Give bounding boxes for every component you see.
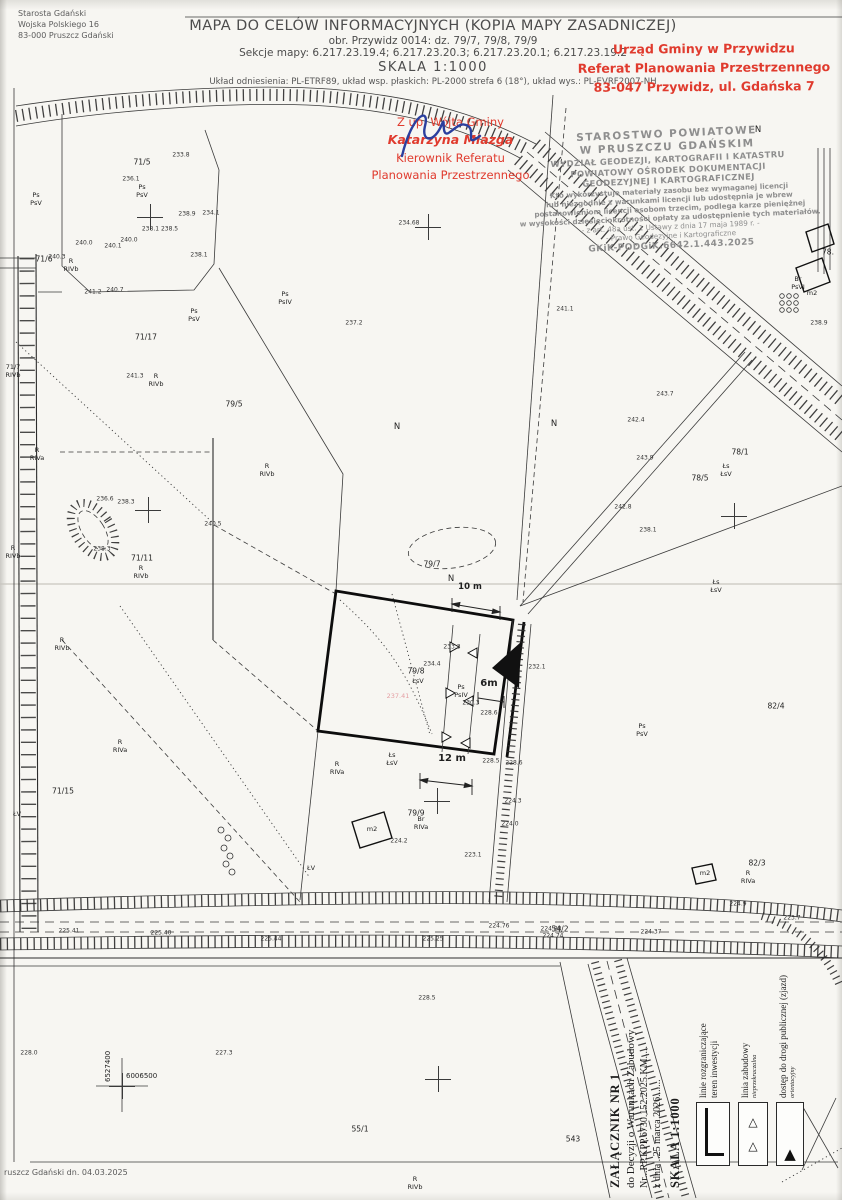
survey-cross-icon: [721, 503, 747, 529]
map-label: Ps PsV: [636, 723, 648, 739]
scanned-map-page: Starosta Gdański Wojska Polskiego 16 83-…: [0, 0, 842, 1200]
map-label: 55/1: [351, 1124, 368, 1133]
attachment-date: z dnia ..25 marca 2026.......: [652, 980, 663, 1188]
map-label: 225.41: [59, 927, 80, 934]
map-label: 228.5: [482, 757, 499, 764]
map-label: 223.7: [783, 914, 800, 921]
map-label: 234.1: [202, 209, 219, 216]
legend-item-text: linia zabudowy nieprzekraczalna: [740, 928, 759, 1098]
map-label: R RIVa: [113, 739, 127, 755]
map-label: Ps PsIV: [278, 291, 292, 307]
map-label: Ps PsV: [30, 192, 42, 208]
map-label: 224.3: [504, 797, 521, 804]
map-label: 238.9: [810, 319, 827, 326]
map-label: Ps PsV: [188, 308, 200, 324]
map-label: m2: [807, 290, 817, 298]
survey-cross-icon: [424, 788, 450, 814]
legend-item: linie rozgraniczające teren inwestycji: [696, 1102, 730, 1166]
map-label: 232.1: [528, 663, 545, 670]
map-label: N: [394, 422, 400, 432]
legend-symbol-icon: [738, 1102, 768, 1166]
map-label: 79/5: [225, 399, 242, 408]
map-label: 225.44: [261, 935, 282, 942]
map-label: 12 m: [438, 753, 466, 765]
map-label: 225.25: [423, 935, 444, 942]
map-label: 224.37: [641, 928, 662, 935]
map-label: 240.0: [75, 239, 92, 246]
grid-coordinate-easting: 6527400: [104, 1051, 112, 1082]
map-label: 78.: [822, 247, 834, 256]
map-label: 237.41: [387, 693, 410, 701]
map-label: 6m: [480, 678, 497, 690]
map-label: 230.3: [462, 699, 479, 706]
map-label: R RIVa: [30, 447, 44, 463]
map-label: 71/7 RIVb: [5, 364, 20, 380]
legend-symbol-icon: [776, 1102, 804, 1166]
map-label: 238.9: [178, 210, 195, 217]
map-label: Br RIVa: [414, 816, 428, 832]
map-label: 79/7: [423, 559, 440, 568]
map-label: 240.5: [204, 520, 221, 527]
map-label: 228.6: [480, 709, 497, 716]
map-label: 79/8: [407, 666, 424, 675]
stamp-department: Referat Planowania Przestrzennego: [566, 58, 842, 79]
map-label: 238.1 238.5: [142, 225, 178, 232]
legend-item: linia zabudowy nieprzekraczalna: [738, 1102, 768, 1166]
map-label: R RIVb: [63, 258, 78, 274]
map-label: 225.40: [151, 929, 172, 936]
map-label: 71/11: [131, 553, 153, 562]
map-label: 243.7: [656, 390, 673, 397]
map-label: Łs ŁsV: [386, 752, 398, 768]
map-label: 82/4: [767, 701, 784, 710]
map-label: 238.1: [639, 526, 656, 533]
map-label: 228.5: [418, 994, 435, 1001]
attachment-scale: SKALA 1:1000: [668, 980, 683, 1188]
map-label: R RIVb: [259, 463, 274, 479]
map-label: 10 m: [458, 582, 482, 592]
stamp-office-name: Urząd Gminy w Przywidzu: [566, 39, 842, 60]
map-label: 238.3: [117, 498, 134, 505]
map-label: 71/5: [133, 157, 150, 166]
legend-item-label: linie rozgraniczające teren inwestycji: [698, 928, 721, 1098]
attachment-number: ZAŁĄCZNIK NR 1: [608, 980, 623, 1188]
map-label: 224.2: [390, 837, 407, 844]
map-label: 71/17: [135, 332, 157, 341]
map-label: 242.4: [627, 416, 644, 423]
map-label: m2: [700, 870, 710, 878]
survey-cross-icon: [425, 1066, 451, 1092]
map-label: 234.4: [423, 660, 440, 667]
map-label: R RIVa: [330, 761, 344, 777]
footer-date-note: ruszcz Gdański dn. 04.03.2025: [4, 1168, 128, 1177]
map-label: ŁV: [13, 811, 21, 819]
map-label: Łs ŁsV: [710, 579, 722, 595]
map-label: 240.1: [104, 242, 121, 249]
map-label: 78/1: [731, 447, 748, 456]
map-label: 224.74: [543, 932, 564, 939]
map-label: m2: [367, 826, 377, 834]
map-label: 242.8: [614, 503, 631, 510]
map-label: 543: [566, 1134, 581, 1143]
legend-item-note: orientacyjny: [789, 928, 797, 1098]
map-label: 240.7: [106, 286, 123, 293]
legend-symbol-icon: [696, 1102, 730, 1166]
municipal-office-stamp: Urząd Gminy w Przywidzu Referat Planowan…: [566, 39, 842, 97]
map-label: 233.3: [443, 643, 460, 650]
grid-coordinate-northing: 6006500: [126, 1072, 157, 1080]
map-label: 238.1: [190, 251, 207, 258]
map-label: 240.3: [48, 253, 65, 260]
map-label: 71/15: [52, 786, 74, 795]
map-label: 236.6: [96, 495, 113, 502]
legend-item-note: nieprzekraczalna: [751, 928, 759, 1098]
legend-item-text: dostęp do drogi publicznej (zjazd) orien…: [778, 928, 797, 1098]
map-label: 240.0: [120, 236, 137, 243]
map-label: 236.1: [122, 175, 139, 182]
map-label: 228.0: [20, 1049, 37, 1056]
map-label: 82/3: [748, 858, 765, 867]
map-label: 243.9: [636, 454, 653, 461]
map-label: 241.2: [84, 288, 101, 295]
map-label: R RIVb: [148, 373, 163, 389]
map-label: 224.76: [489, 922, 510, 929]
attachment-decision: do Decyzji o Warunkach Zabudowy: [625, 980, 637, 1188]
attachment-title-block: ZAŁĄCZNIK NR 1 do Decyzji o Warunkach Za…: [608, 980, 683, 1188]
map-label: 234.68: [399, 219, 420, 226]
survey-cross-icon: [415, 214, 441, 240]
survey-cross-icon: [135, 497, 161, 523]
map-label: 233.8: [172, 151, 189, 158]
map-label: 238.3: [93, 545, 110, 552]
legend-item-text: linie rozgraniczające teren inwestycji: [698, 928, 721, 1098]
map-label: 241.3: [126, 372, 143, 379]
map-label: 228.6: [505, 759, 522, 766]
attachment-case-number: Nr...RP.KPP.6730.152.2025.KM.....: [639, 980, 650, 1188]
map-label: 223.1: [464, 851, 481, 858]
map-label: Ps PsIV: [454, 684, 468, 700]
map-label: ŁV: [307, 865, 315, 873]
map-label: R RIVb: [133, 565, 148, 581]
map-label: Br PsVI: [791, 276, 805, 292]
map-label: R RIVb: [54, 637, 69, 653]
map-label: 224.0: [501, 820, 518, 827]
legend-item-label: dostęp do drogi publicznej (zjazd): [778, 928, 789, 1098]
map-label: Ps PsV: [136, 184, 148, 200]
map-label: R RIVb: [407, 1176, 422, 1192]
map-label: R RIVa: [741, 870, 755, 886]
stamp-address: 83-047 Przywidz, ul. Gdańska 7: [566, 77, 842, 98]
map-label: Łs ŁsV: [720, 463, 732, 479]
map-label: 241.1: [556, 305, 573, 312]
map-label: N: [448, 574, 454, 584]
map-label: 227.3: [215, 1049, 232, 1056]
map-label: N: [551, 419, 557, 429]
handwritten-signature: [388, 100, 508, 170]
map-label: ŁsV: [412, 678, 424, 686]
map-label: 237.2: [345, 319, 362, 326]
map-label: 224.9: [729, 900, 746, 907]
map-label: 78/5: [691, 473, 708, 482]
map-label: R RIVb: [5, 545, 20, 561]
legend-item: dostęp do drogi publicznej (zjazd) orien…: [776, 1102, 804, 1166]
legend-item-label: linia zabudowy: [740, 928, 751, 1098]
